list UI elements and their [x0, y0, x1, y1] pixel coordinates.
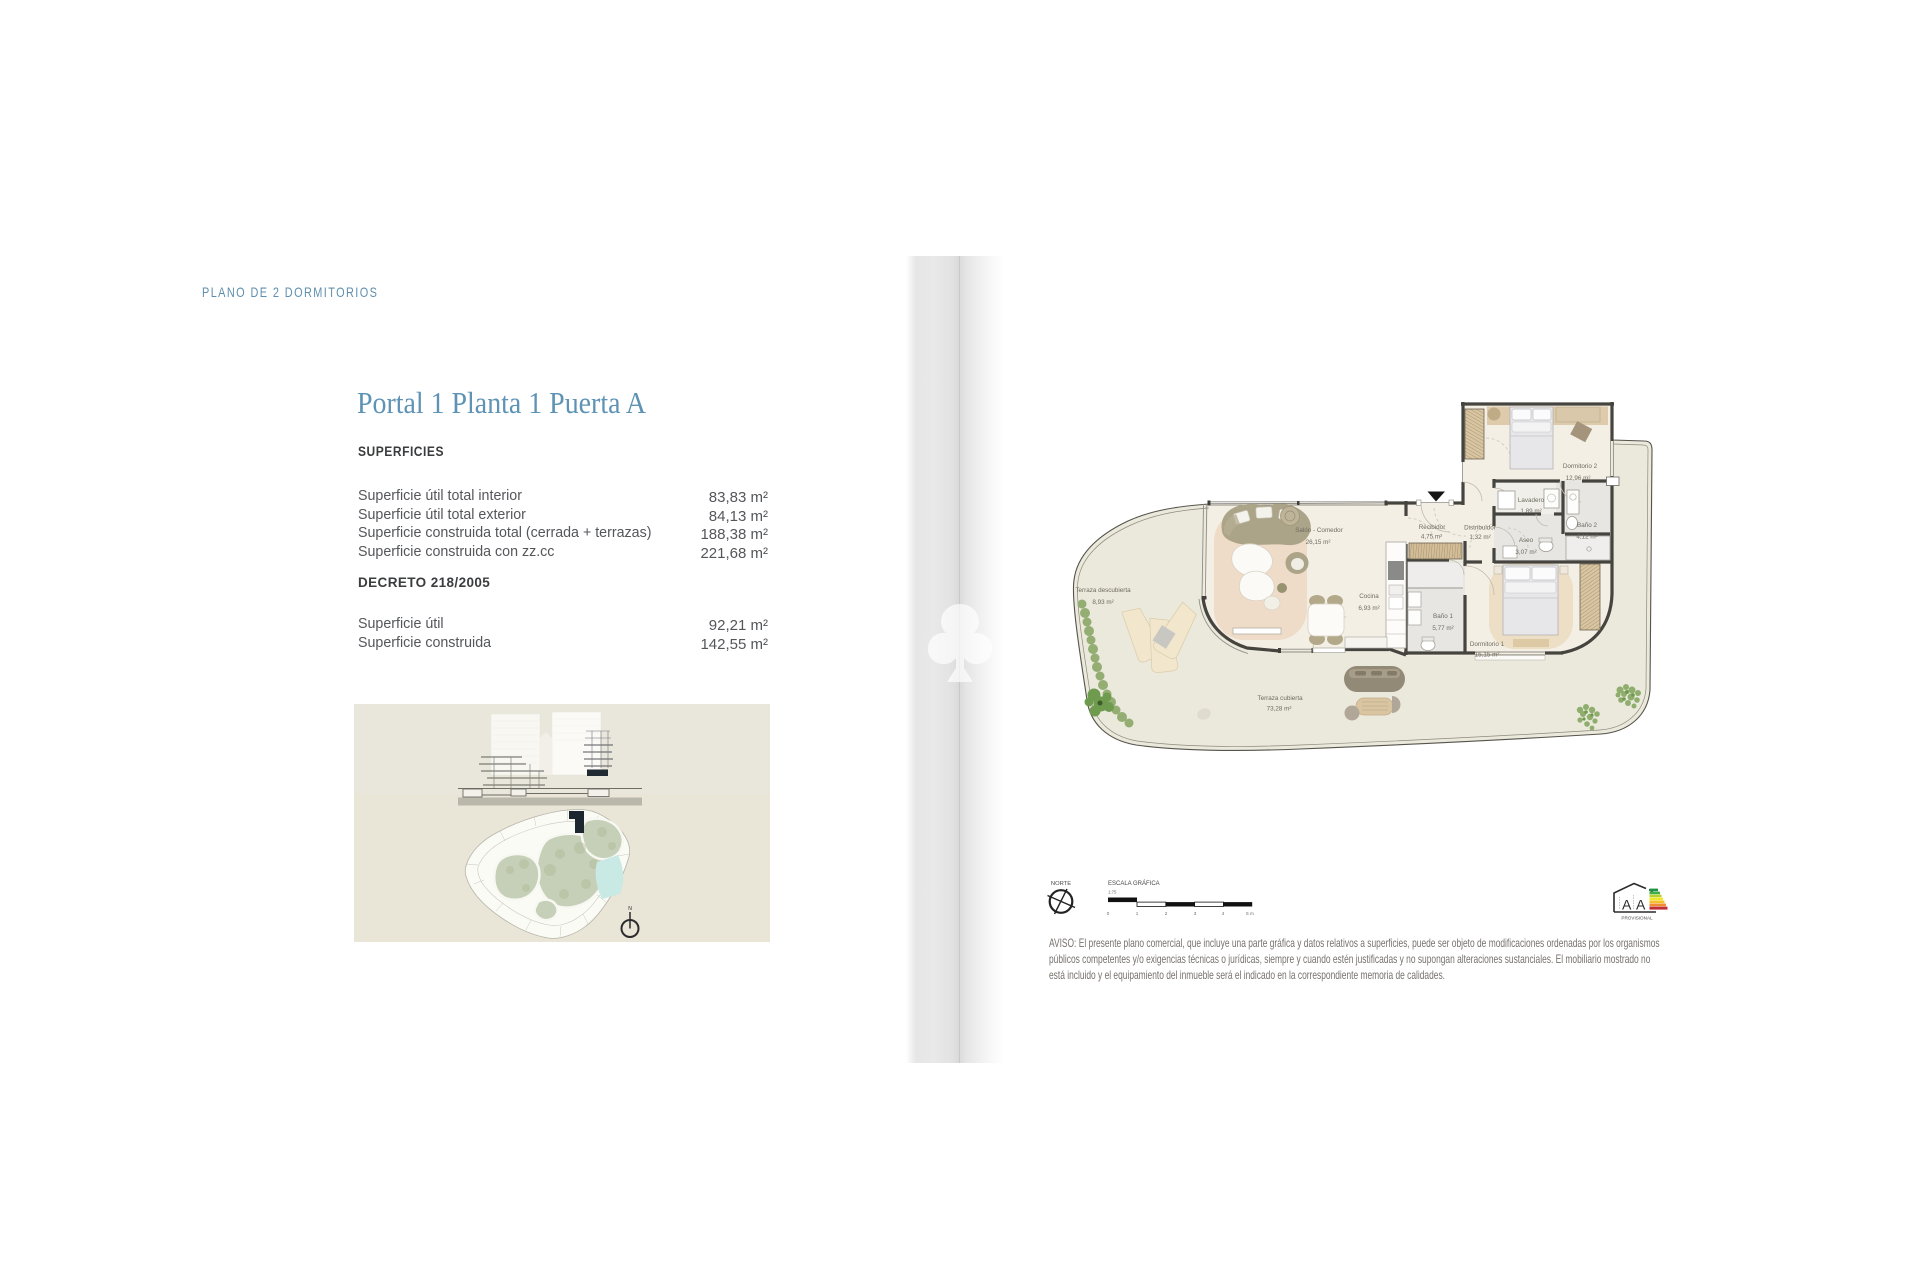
svg-text:Baño 1: Baño 1: [1433, 613, 1453, 620]
svg-text:6,93 m²: 6,93 m²: [1358, 605, 1379, 612]
svg-text:4,75 m²: 4,75 m²: [1421, 534, 1442, 541]
svg-text:4: 4: [1222, 911, 1225, 916]
svg-text:1:75: 1:75: [1108, 890, 1117, 895]
svg-text:4,12 m²: 4,12 m²: [1576, 534, 1597, 541]
svg-text:2: 2: [1165, 911, 1168, 916]
svg-text:73,28 m²: 73,28 m²: [1267, 706, 1292, 713]
svg-text:Terraza cubierta: Terraza cubierta: [1257, 695, 1303, 702]
svg-text:Recibidor: Recibidor: [1419, 524, 1446, 531]
svg-text:3: 3: [1194, 911, 1197, 916]
svg-text:PROVISIONAL: PROVISIONAL: [1621, 916, 1653, 921]
svg-text:3,07 m²: 3,07 m²: [1515, 549, 1536, 556]
svg-text:15,15 m²: 15,15 m²: [1475, 652, 1500, 659]
svg-text:5 m: 5 m: [1246, 911, 1254, 916]
svg-text:5,77 m²: 5,77 m²: [1432, 625, 1453, 632]
svg-text:Cocina: Cocina: [1359, 593, 1379, 600]
svg-text:Terraza descubierta: Terraza descubierta: [1075, 587, 1131, 594]
svg-text:A: A: [1636, 897, 1646, 913]
svg-text:8,93 m²: 8,93 m²: [1092, 599, 1113, 606]
svg-text:Dormitorio 2: Dormitorio 2: [1563, 463, 1598, 470]
svg-text:NORTE: NORTE: [1051, 881, 1071, 887]
svg-text:Baño 2: Baño 2: [1577, 522, 1597, 529]
svg-text:0: 0: [1107, 911, 1110, 916]
svg-text:26,15 m²: 26,15 m²: [1306, 539, 1331, 546]
svg-text:1,32 m²: 1,32 m²: [1469, 534, 1490, 541]
svg-text:1,89 m²: 1,89 m²: [1520, 508, 1541, 515]
svg-text:1: 1: [1136, 911, 1139, 916]
svg-text:12,96 m²: 12,96 m²: [1566, 475, 1591, 482]
svg-text:ESCALA GRÁFICA: ESCALA GRÁFICA: [1108, 880, 1160, 887]
svg-text:N: N: [628, 906, 632, 912]
svg-text:Aseo: Aseo: [1519, 537, 1534, 544]
svg-text:Lavadero: Lavadero: [1518, 497, 1545, 504]
svg-text:Distribuidor: Distribuidor: [1464, 525, 1496, 532]
svg-text:Dormitorio 1: Dormitorio 1: [1470, 641, 1505, 648]
svg-text:Salón - Comedor: Salón - Comedor: [1295, 527, 1343, 534]
svg-text:A: A: [1622, 897, 1632, 913]
